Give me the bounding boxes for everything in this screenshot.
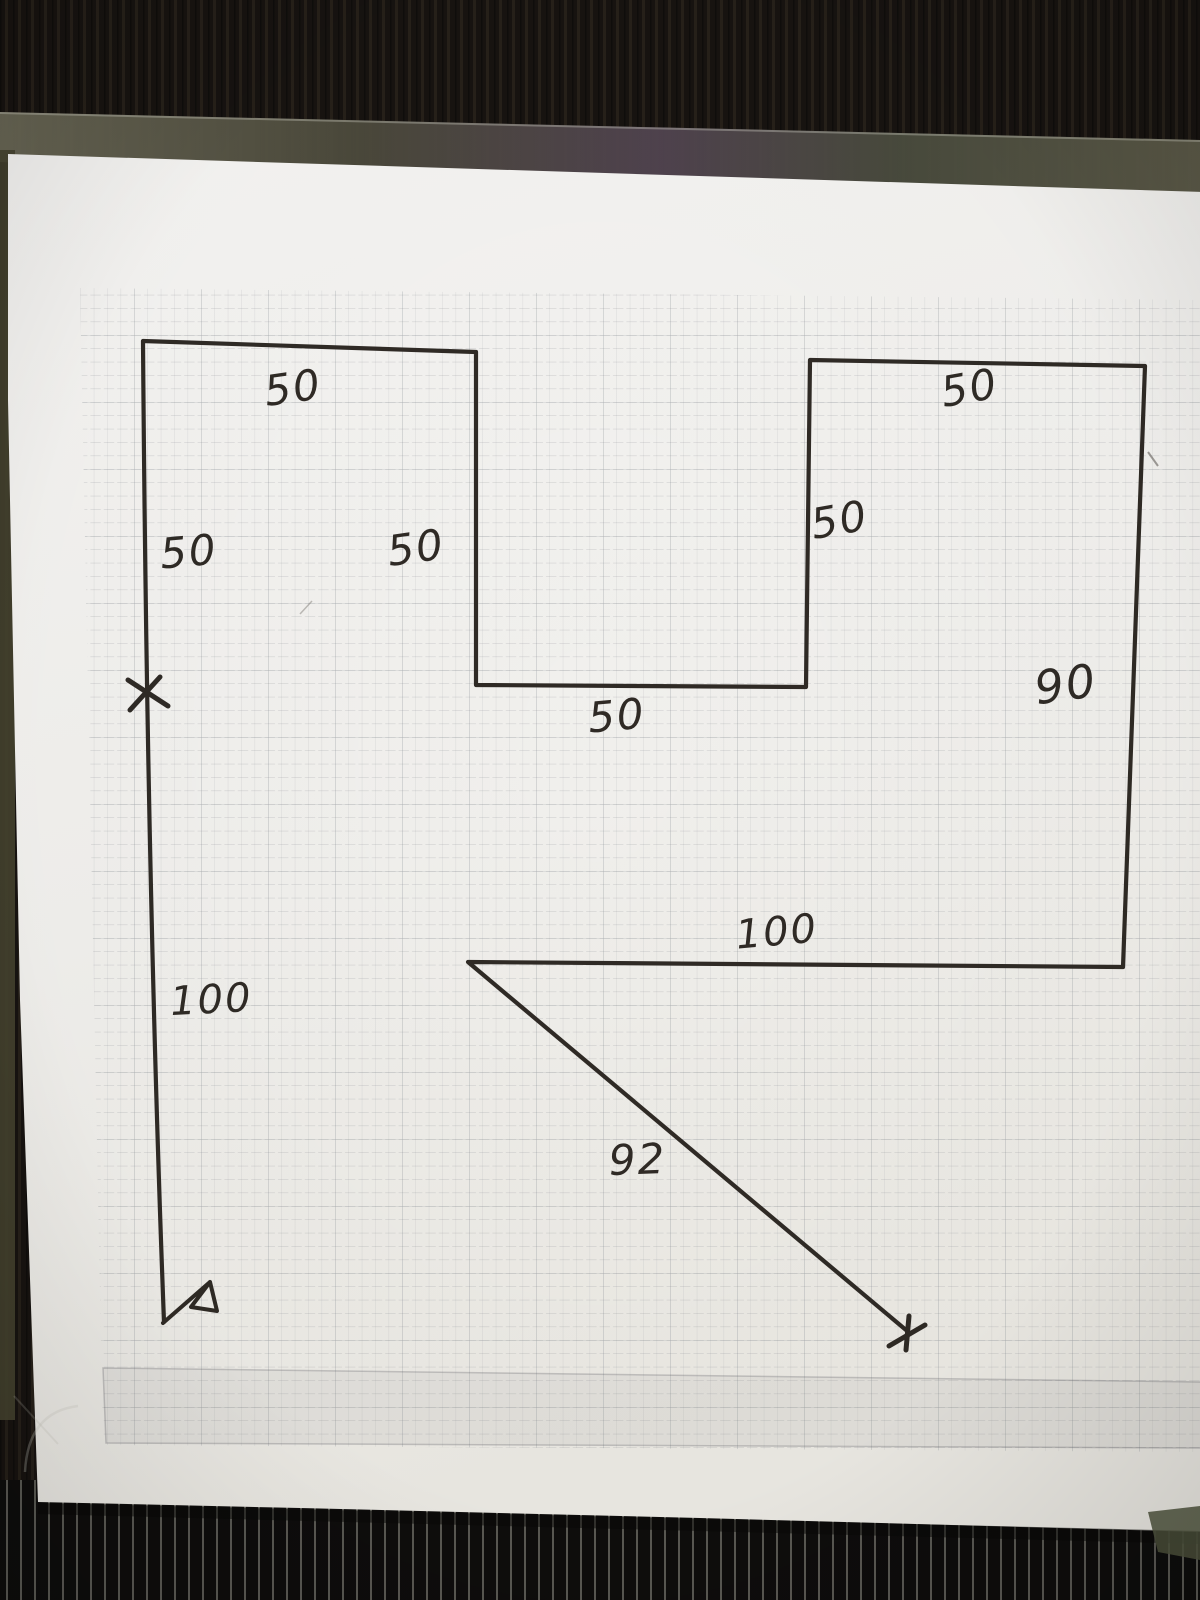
photo-vignette [0, 0, 1200, 1600]
scene-canvas: 50 50 50 50 50 50 90 100 100 92 [0, 0, 1200, 1600]
photo-of-hand-drawn-plan: 50 50 50 50 50 50 90 100 100 92 [0, 0, 1200, 1600]
